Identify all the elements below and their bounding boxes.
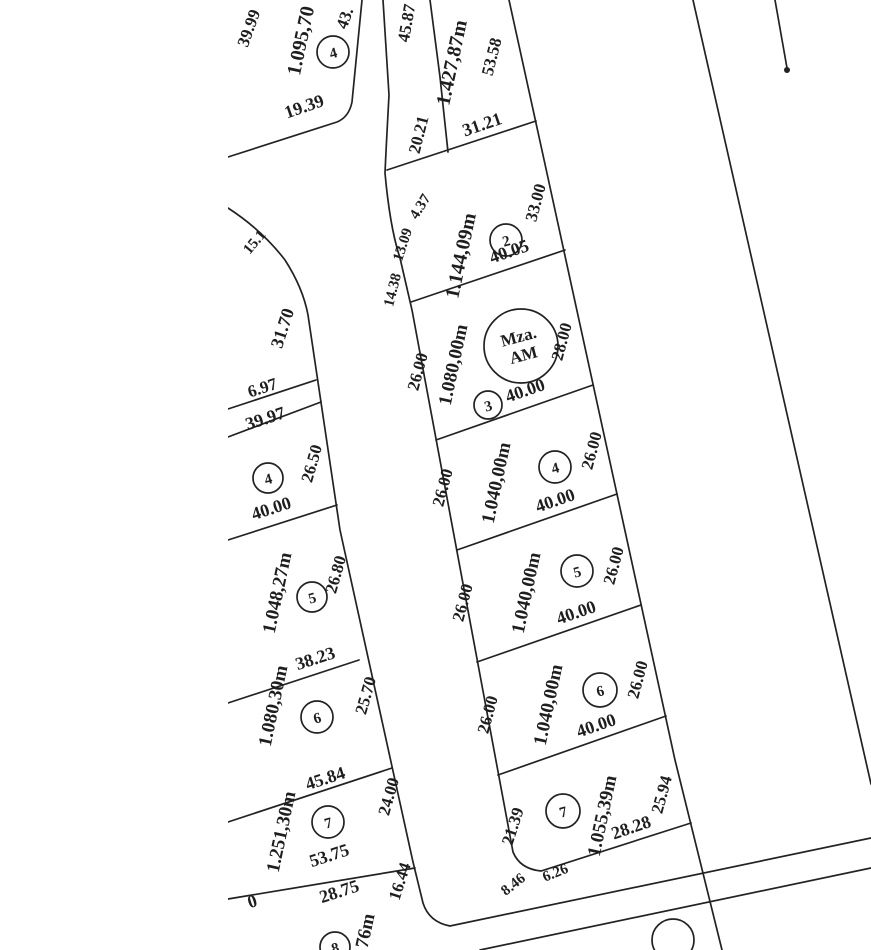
lot-number: 4 (263, 471, 275, 489)
area-label-partial: 76m (352, 911, 380, 950)
side-dimension: 39.97 (243, 403, 288, 435)
street-side-dimension: 31.70 (267, 306, 299, 351)
lot-number: 5 (307, 590, 318, 607)
side-dimension: 40.00 (533, 484, 578, 516)
area-label: 1.040,00m (508, 550, 546, 635)
plat-linework (228, 0, 871, 950)
area-label: 1.080,00m (435, 322, 473, 407)
curve-chord-dimension: 13.09 (390, 226, 416, 263)
lot-number: 5 (572, 564, 583, 581)
side-dimension: 40.00 (503, 374, 548, 406)
side-dimension: 21.39 (498, 805, 528, 847)
area-label: 1.040,00m (478, 440, 516, 525)
street-labels: 15.1 31.70 (240, 227, 298, 350)
side-dimension: 53.75 (307, 840, 352, 872)
side-dimension: 40.00 (574, 709, 619, 741)
lot-number: 7 (558, 804, 570, 822)
curve-chord-dimension: 14.38 (381, 272, 405, 309)
side-dimension: 45.87 (394, 2, 419, 43)
bottom-street-south-line (480, 868, 871, 950)
area-label: 1.040,00m (530, 662, 568, 747)
side-dimension: 6.97 (245, 374, 280, 401)
side-dimension: 28.75 (317, 876, 362, 908)
side-dimension: 19.39 (282, 90, 327, 122)
bottom-right-manzana-circle (652, 919, 694, 950)
divider-lb-lot5-lot6 (228, 660, 359, 703)
corner-dimension: 15.1 (240, 227, 269, 257)
lot-number: 6 (595, 683, 607, 701)
side-dimension: 20.21 (405, 114, 433, 156)
side-dimension: 26.00 (578, 430, 606, 472)
side-dimension: 26.00 (449, 582, 477, 624)
side-dimension: 53.58 (478, 36, 506, 78)
upper-left-lot: 1.095,70 4 39.99 19.39 43. (233, 4, 357, 122)
side-dimension: 16.44 (385, 860, 415, 903)
right-street-line (693, 0, 871, 784)
side-dimension: 43. (332, 5, 357, 31)
scan-crop-margin (0, 0, 228, 950)
area-label: 1.095,70 (283, 4, 319, 77)
side-dimension: 31.21 (460, 108, 505, 140)
side-dimension: 26.00 (404, 351, 432, 393)
lot-number: 6 (312, 710, 324, 728)
corner-chord-dimension: 6.26 (540, 861, 571, 886)
area-label: 1.144,09m (441, 211, 481, 301)
side-dimension: 26.00 (429, 467, 457, 509)
side-dimension: 26.80 (321, 553, 350, 595)
lot-number: 4 (328, 45, 340, 63)
lot-number: 3 (483, 398, 494, 415)
area-label: 1.055,39m (584, 773, 622, 858)
side-dimension: 26.00 (474, 694, 502, 736)
right-street-stub-end (784, 67, 790, 73)
side-dimension: 40.05 (487, 235, 532, 267)
side-dimension: 39.99 (233, 7, 264, 49)
lot-number: 7 (323, 815, 335, 833)
side-dimension: 25.94 (648, 773, 676, 815)
side-dimension: 33.00 (522, 182, 550, 224)
side-dimension: 26.00 (600, 545, 628, 587)
corner-chord-dimension: 8.46 (498, 870, 529, 899)
side-dimension: 40.00 (249, 493, 294, 525)
curve-chord-dimension: 4.37 (407, 191, 435, 222)
area-label: 1.048,27m (259, 550, 297, 635)
side-dimension: 40.00 (554, 596, 599, 628)
cadastral-plat-page: 1.095,70 4 39.99 19.39 43. 15.1 31.70 6.… (0, 0, 871, 950)
area-label: 1.080,30m (255, 663, 293, 748)
side-dimension: 28.28 (609, 811, 654, 843)
side-dimension: 26.50 (297, 442, 326, 484)
plat-drawing: 1.095,70 4 39.99 19.39 43. 15.1 31.70 6.… (0, 0, 871, 950)
right-street-stub (775, 0, 787, 68)
lot-number: 4 (550, 460, 562, 478)
area-label: 1.251,30m (263, 789, 301, 874)
lot-number: 8 (330, 940, 341, 950)
divider-rb-lot2-lot3 (411, 250, 565, 302)
side-dimension: 26.00 (624, 659, 652, 701)
